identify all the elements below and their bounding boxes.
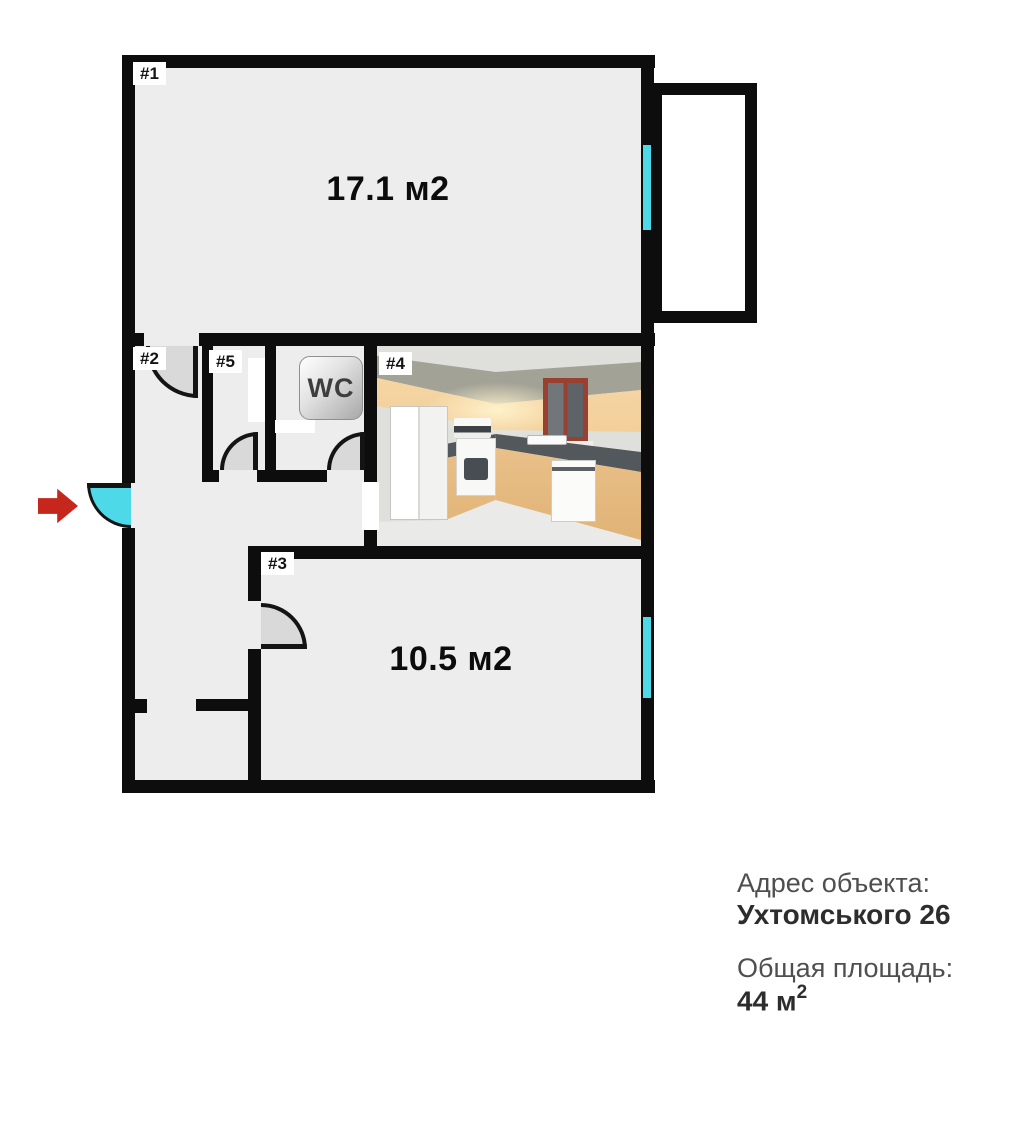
wall-kitchen-left-upper	[364, 346, 377, 482]
address-label: Адрес объекта:	[737, 868, 1007, 899]
wall-room5-bottom-b	[257, 470, 327, 482]
wall-mid-right	[199, 333, 655, 346]
wc-fixture-small	[275, 420, 315, 433]
wall-room5-divider	[265, 346, 276, 482]
room-5-label: #5	[209, 350, 242, 373]
wall-mid-left	[122, 333, 144, 346]
room-3-label: #3	[261, 552, 294, 575]
kitchen-oven-window	[464, 458, 488, 480]
room-1-area: 17.1 м2	[135, 170, 641, 209]
room-4-label: #4	[379, 352, 412, 375]
wall-top	[122, 55, 655, 68]
window-icon-room1	[643, 145, 651, 230]
wall-room3-top	[248, 546, 654, 559]
kitchen-window	[543, 378, 588, 442]
total-area-superscript: 2	[797, 982, 808, 1003]
room-3-area: 10.5 м2	[261, 640, 641, 679]
window-icon-room3	[643, 617, 651, 698]
kitchen-dishwasher	[551, 460, 596, 522]
kitchen-door-opening	[362, 482, 379, 530]
floorplan-page: WC #1 #2 #3 #4 #5 17.1 м2 10.5 м2 Адрес …	[0, 0, 1024, 1143]
wall-room3-left-upper	[248, 546, 261, 601]
entrance-door-icon	[87, 483, 131, 528]
wc-fixture	[248, 358, 265, 422]
kitchen-sink	[527, 435, 567, 445]
wall-left-upper	[122, 55, 135, 483]
wall-pillar	[133, 699, 147, 713]
total-area-label: Общая площадь:	[737, 953, 1007, 984]
room-2-label: #2	[133, 347, 166, 370]
address-value: Ухтомського 26	[737, 899, 1007, 931]
wall-room3-left-lower	[248, 649, 261, 793]
wall-left-lower	[122, 528, 135, 793]
wall-hall-stub	[196, 699, 252, 711]
wall-room5-bottom-c	[364, 470, 377, 482]
info-block: Адрес объекта: Ухтомського 26 Общая площ…	[737, 868, 1007, 1018]
wc-label: WC	[308, 373, 355, 404]
wall-room5-bottom-a	[202, 470, 219, 482]
total-area-value: 44 м2	[737, 984, 1007, 1018]
wc-icon: WC	[299, 356, 363, 420]
room-1-label: #1	[133, 62, 166, 85]
kitchen-fridge	[390, 406, 448, 520]
balcony	[650, 83, 757, 323]
kitchen-photo	[377, 346, 641, 546]
wall-bottom	[122, 780, 655, 793]
kitchen-microwave	[454, 418, 491, 438]
entrance-arrow-icon	[38, 488, 78, 524]
